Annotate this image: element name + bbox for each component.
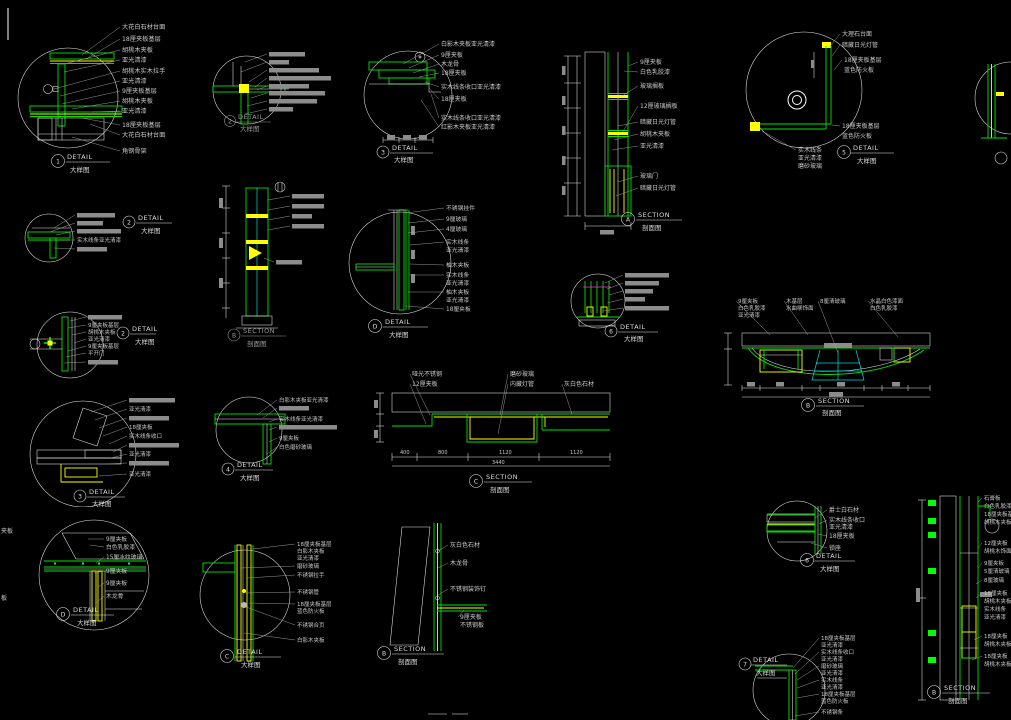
text-shape: 大样图 [756, 668, 776, 677]
leader-line [269, 438, 277, 442]
rect-shape [203, 563, 235, 572]
text-shape: DETAIL [73, 606, 99, 614]
annotation-label: 18厘夹板 [446, 305, 471, 313]
rect-shape [587, 307, 593, 316]
annotation-label: 蓝色防火板 [297, 607, 325, 615]
annotations: 9厘夹板白色乳胶漆玻璃搁板12厘玻璃搁板暗藏日光灯管胡桃木夹板亚光清漆玻璃门暗藏… [600, 58, 678, 235]
annotations [264, 194, 324, 265]
annotation-bar [829, 392, 843, 397]
leader-line [438, 589, 448, 595]
annotation-label: 不锈钢条 [821, 708, 844, 716]
annotation-label: 18厘夹板 [441, 95, 467, 103]
annotation-label: 12厘夹板 [412, 380, 438, 388]
text-shape: SECTION [818, 397, 850, 405]
leader-line [98, 583, 104, 587]
annotation-label: 白色乳胶漆 [984, 502, 1011, 510]
text-shape: B [932, 690, 936, 697]
detail-callout: 1 DETAIL 大样图 [52, 153, 111, 174]
annotation-label: 亚光清漆 [446, 246, 469, 254]
text-shape: DETAIL [237, 648, 263, 656]
text-shape: 3 [78, 494, 82, 501]
annotation-bar [292, 194, 324, 199]
leader-line [90, 545, 104, 547]
text-shape: SECTION [243, 327, 275, 335]
text-shape: 剖面图 [948, 696, 968, 705]
annotation-label: 亚光清漆 [122, 56, 147, 64]
text-shape: A [626, 217, 631, 224]
geometry [746, 32, 862, 148]
leader-line [269, 427, 277, 430]
annotation-label: 18厘夹板 [129, 423, 153, 431]
rect-shape [608, 132, 628, 135]
rect-shape [562, 96, 566, 105]
annotation-bar [269, 52, 305, 57]
drawing-corner-detail: 18厘夹板基层亚光清漆实木线条收口亚光清漆磨砂玻璃亚光清漆实木线条亚光清漆18厘… [737, 628, 927, 720]
rect-shape [894, 348, 910, 362]
rect-shape [880, 348, 892, 360]
leader-line [249, 603, 295, 604]
rect-shape [374, 400, 378, 408]
text-shape: SECTION [486, 473, 518, 481]
annotation-bar [269, 91, 325, 96]
circle-shape [349, 212, 451, 314]
circle-shape [242, 589, 246, 593]
leader-line [68, 325, 86, 328]
annotation-bar [129, 398, 175, 403]
annotation-label: 亚光清漆 [829, 523, 853, 531]
leader-line [797, 680, 819, 688]
annotation-bar [625, 289, 653, 294]
leader-line [976, 580, 982, 584]
rect-shape [940, 496, 956, 700]
annotation-label: 亚光清漆 [821, 669, 844, 677]
rect-shape [246, 240, 268, 244]
leader-line [66, 353, 86, 357]
leader-line [74, 339, 86, 343]
leader-line [269, 419, 277, 422]
annotation-label: 18厘夹板 [984, 652, 1008, 660]
annotation-label: 玻璃门 [640, 172, 658, 180]
leader-line [111, 454, 127, 458]
detail-callout: 5 DETAIL 大样图 [838, 144, 895, 165]
annotation-label: 大花白石材台面 [122, 23, 165, 31]
rect-shape [389, 78, 429, 84]
annotation-label: 木基层 [786, 297, 803, 305]
polyline-shape [392, 414, 432, 426]
annotation-label: 4厘玻璃 [446, 225, 467, 233]
annotation-label: 实木线条 [446, 271, 469, 279]
annotation-bar [77, 221, 103, 226]
annotation-label: 磨砂玻璃 [798, 162, 822, 170]
leader-line [60, 81, 120, 96]
annotation-label: 锁座 [829, 544, 841, 552]
rect-shape [767, 525, 815, 531]
annotation-label: 实木线条 [446, 238, 469, 246]
leader-line [562, 384, 572, 414]
rect-shape [585, 52, 605, 216]
leader-line [99, 418, 127, 428]
drawing-column-section: B SECTION 剖面图 [216, 178, 328, 348]
text-shape: 大样图 [394, 155, 414, 164]
text-shape: 大样图 [135, 337, 155, 346]
drawing-joint-detail: 2 DETAIL 大样图 [205, 42, 355, 134]
circle-shape [995, 152, 1007, 164]
text-shape: 剖面图 [490, 485, 510, 494]
annotation-label: 1120 [499, 450, 512, 456]
annotation-label: 18厘夹板 [441, 69, 467, 77]
drawing-panel-detail: 白影木夹板亚光清漆实木线条亚光清漆9厘夹板白色磨砂玻璃 4 DETAIL 大样图 [207, 392, 347, 484]
text-shape: 2 [121, 331, 125, 338]
annotation-label: 白色乳胶漆 [106, 543, 135, 551]
annotation-bar [403, 135, 411, 140]
annotation-label: 蓝色防火板 [842, 132, 872, 140]
circle-shape [216, 397, 282, 463]
annotation-label: 18厘夹板基层 [297, 540, 332, 548]
rect-shape [219, 198, 223, 208]
leader-line [90, 124, 120, 135]
text-shape: B [382, 651, 386, 658]
annotation-label: 9厘夹板 [106, 567, 127, 575]
annotation-label: 暗藏日光灯管 [842, 41, 878, 49]
circle-shape [30, 339, 40, 349]
annotation-label: 实木线条 [984, 605, 1007, 613]
circle-shape [251, 227, 254, 230]
leader-line [268, 206, 290, 210]
annotation-label: 亚光清漆 [798, 154, 822, 162]
leader-line [268, 226, 290, 230]
annotation-label: 9厘玻璃 [446, 215, 467, 223]
annotation-label: 9厘夹板基层 [122, 87, 157, 95]
drawing-stone-trim-detail: 爵士白石材实木线条收口亚光清漆18厘夹板锁座 6 DETAIL 大样图 [757, 498, 915, 578]
annotation-label: 白色磨砂玻璃 [279, 443, 313, 451]
drawing-wall-section-right: 石膏板白色乳胶漆18厘夹板基层胡桃木夹板12厘夹板胡桃木饰面9厘夹板5厘清玻璃8… [912, 488, 1011, 720]
text-shape: C [225, 654, 229, 661]
annotation-label: 白影木夹板 [297, 547, 325, 555]
leader-line [54, 71, 120, 89]
detail-callout: D DETAIL 大样图 [369, 318, 429, 339]
leader-line [978, 543, 982, 548]
text-shape: 6 [609, 329, 613, 336]
rect-shape [928, 657, 936, 663]
leader-line [245, 54, 267, 62]
text-shape: 大样图 [92, 499, 112, 507]
annotation-label: 实木线条亚光清漆 [77, 236, 122, 244]
rect-shape [82, 563, 84, 565]
annotation-bar [269, 84, 309, 89]
leader-line [978, 498, 982, 502]
circle-shape [419, 56, 422, 59]
rect-shape [562, 66, 566, 75]
annotation-label: 磨砂玻璃 [297, 562, 320, 570]
drawing-glass-door-detail: 18厘夹板基层白影木夹板亚光清漆磨砂玻璃不锈钢拉手不锈钢管18厘夹板基层蓝色防火… [197, 533, 353, 675]
rect-shape [38, 118, 104, 140]
rect-shape [601, 307, 607, 316]
annotation-label: 18厘夹板基层 [844, 56, 882, 64]
geometry [724, 333, 930, 397]
annotation-label: 亚光清漆 [297, 554, 320, 562]
annotation-label: 磨砂玻璃 [510, 370, 534, 378]
annotation-label: 9厘夹板 [441, 51, 463, 59]
leader-line [811, 543, 827, 548]
rect-shape [562, 186, 566, 195]
annotation-label: 胡桃木夹板 [640, 130, 670, 138]
leader-line [609, 291, 623, 295]
detail-callout: 6 DETAIL 大样图 [801, 552, 856, 573]
circle-shape [975, 62, 1011, 134]
text-shape: DETAIL [620, 323, 646, 331]
leader-line [72, 332, 86, 335]
annotation-label: 白色乳胶漆 [738, 304, 766, 312]
annotation-label: 灰白色石材 [450, 541, 480, 549]
annotation-bar [837, 382, 845, 387]
annotations: 白影木夹板亚光清漆实木线条亚光清漆9厘夹板白色磨砂玻璃 [257, 396, 337, 454]
polyline-shape [233, 62, 241, 86]
annotation-label: 不锈钢板 [460, 621, 484, 629]
detail-callout: 2 DETAIL 大样图 [123, 214, 172, 235]
text-shape: 7 [743, 662, 747, 669]
annotation-bar [776, 382, 784, 387]
annotation-label: 亚光清漆 [821, 641, 844, 649]
annotation-label: 18厘夹板基层 [297, 600, 332, 608]
geometry [25, 214, 73, 262]
text-shape: 剖面图 [642, 223, 662, 232]
text-shape: 4 [226, 467, 230, 474]
leader-line [616, 188, 638, 196]
annotation-label: 爵士白石材 [829, 506, 859, 514]
text-shape: 大样图 [240, 124, 260, 133]
annotation-bar [279, 425, 337, 430]
rect-shape [54, 563, 56, 565]
annotation-label: 白影木夹板亚光清漆 [279, 396, 329, 404]
annotation-label: 胡桃木夹板 [984, 597, 1011, 605]
annotation-label: 胡桃木夹板 [984, 660, 1011, 668]
leader-line [54, 248, 75, 249]
annotation-label: 18厘夹板 [984, 632, 1008, 640]
rect-shape [750, 122, 760, 131]
circle-shape [44, 85, 53, 94]
text-shape: 大样图 [624, 334, 644, 343]
leader-line [251, 93, 267, 98]
leader-line [410, 242, 444, 245]
text-shape: 大样图 [241, 660, 261, 669]
text-shape: B [806, 403, 810, 410]
annotation-bar [625, 281, 659, 286]
rect-shape [411, 274, 415, 283]
leader-line [830, 34, 840, 46]
leader-line [268, 216, 290, 220]
annotation-label: 红影木夹板亚光清漆 [441, 123, 495, 131]
circle-shape [793, 96, 802, 105]
leader-line [82, 27, 120, 55]
leader-line [263, 408, 277, 418]
annotation-label: 柚木夹板 [446, 288, 469, 296]
text-shape: 5 [842, 150, 846, 157]
geometry [916, 496, 999, 700]
rect-shape [996, 92, 1004, 96]
annotation-label: 不锈钢挂件 [446, 204, 475, 212]
annotation-label: 9厘夹板 [279, 434, 299, 442]
annotation-label: 9厘夹板 [738, 297, 758, 305]
section-callout: C SECTION 剖面图 [470, 473, 533, 494]
rect-shape [37, 458, 121, 464]
annotation-label: 暗藏日光灯管 [640, 118, 676, 126]
circle-shape [275, 182, 285, 192]
annotation-label: 平开门 [88, 349, 105, 357]
text-shape: D [373, 324, 378, 331]
annotation-label: 亚光清漆 [129, 470, 152, 478]
annotation-label: 不锈钢装饰钉 [450, 585, 486, 593]
annotation-label: 实木线条收口 [829, 516, 865, 524]
text-shape: 大样图 [70, 165, 90, 174]
detail-callout: 3 DETAIL 大样图 [74, 488, 125, 507]
leader-line [622, 86, 638, 96]
leader-line [498, 384, 508, 434]
text-shape: 大样图 [141, 226, 161, 235]
path-shape [752, 348, 920, 371]
annotation-label: 9厘夹板基层 [88, 321, 119, 329]
rect-shape [219, 238, 223, 248]
rect-shape [68, 563, 70, 565]
annotation-label: 亚光清漆 [821, 655, 844, 663]
geometry [975, 62, 1011, 164]
rect-shape [374, 430, 378, 438]
leader-line [50, 223, 75, 232]
annotation-bar [88, 315, 122, 320]
rect-shape [562, 156, 566, 165]
text-shape: SECTION [394, 645, 426, 653]
rect-shape [928, 518, 936, 524]
annotation-label: 亚光清漆 [122, 107, 147, 115]
drawing-door-detail: 9厘夹板基层胡桃木夹板亚光清漆9厘夹板基层平开门 2 DETAIL 大样图 [22, 303, 158, 403]
leader-line [241, 62, 267, 72]
rect-shape [28, 232, 70, 238]
rect-shape [38, 118, 52, 140]
annotation-label: 实木线条收口亚光清漆 [441, 114, 501, 122]
text-shape: 剖面图 [822, 408, 842, 417]
leader-line [68, 346, 86, 351]
annotation-bar [77, 213, 115, 218]
rect-shape [811, 60, 814, 68]
cad-model-space[interactable]: 夹板 板 大花白石材台面18厘夹板基层胡桃木夹板亚光清漆胡桃木实木拉手亚光清漆9… [0, 0, 1011, 720]
annotation-label: 木龙骨 [106, 592, 124, 600]
annotation-bar [129, 443, 179, 448]
annotation-label: 9厘夹板 [984, 559, 1004, 567]
leader-line [113, 445, 127, 452]
drawing-frame-detail: 亚光清漆18厘夹板实木线条收口亚光清漆亚光清漆 3 DETAIL 大样图 [25, 392, 185, 507]
text-shape: 剖面图 [247, 339, 267, 348]
annotations: 爵士白石材实木线条收口亚光清漆18厘夹板锁座 [811, 506, 865, 552]
annotation-label: 12厘夹板 [984, 539, 1008, 547]
geometry [349, 210, 451, 314]
annotation-label: 胡桃木夹板 [984, 518, 1011, 526]
leader-line [406, 208, 444, 213]
clipped-label: 板 [1, 594, 7, 602]
leader-line [622, 106, 638, 133]
leader-line [978, 563, 982, 568]
geometry [215, 397, 285, 464]
annotation-label: 3440 [492, 460, 505, 466]
leader-line [408, 219, 444, 223]
annotation-label: 亚光清漆 [446, 279, 469, 287]
drawing-trim-detail: 实木线条亚光清漆 2 DETAIL 大样图 [22, 208, 174, 268]
annotation-label: 胡桃木饰面 [984, 547, 1011, 555]
rect-shape [246, 266, 268, 270]
polyline-shape [467, 414, 537, 442]
polygon-shape [249, 246, 262, 260]
rect-shape [98, 571, 102, 621]
annotation-label: 亚光清漆 [122, 77, 147, 85]
rect-shape [239, 84, 249, 93]
text-shape: 大样图 [857, 156, 877, 165]
circle-shape [788, 91, 806, 109]
annotations: 9厘夹板白色乳胶漆亚光清漆木基层水曲柳饰面8厘清玻璃水晶白色漆面白色乳胶漆 [736, 297, 904, 397]
section-callout: B SECTION 剖面图 [928, 684, 991, 705]
text-shape: 剖面图 [398, 657, 418, 666]
leader-line [253, 544, 295, 549]
rect-shape [98, 563, 100, 565]
annotation-bar [292, 204, 324, 209]
annotation-bar [269, 99, 317, 104]
annotation-label: 白色乳胶漆 [870, 304, 898, 312]
annotations [241, 52, 331, 114]
annotation-label: 实木线条收口 [129, 432, 162, 440]
annotation-label: 9厘夹板基层 [88, 342, 119, 350]
annotation-label: 实木线条收口亚光清漆 [441, 83, 501, 91]
annotation-bar [269, 76, 331, 81]
annotation-label: 实木线条 [798, 146, 822, 154]
clipped-label: 夹板 [1, 527, 13, 535]
annotation-label: 不锈钢管 [297, 588, 320, 596]
leader-line [425, 82, 439, 87]
rect-shape [822, 42, 831, 48]
annotation-label: 18厘夹板基层 [984, 510, 1011, 518]
annotation-label: 18厘夹板基层 [122, 121, 161, 129]
annotation-label: 800 [438, 450, 448, 456]
circle-shape [200, 550, 290, 640]
text-shape: B [232, 333, 236, 340]
leader-line [409, 55, 439, 68]
annotation-bar [625, 306, 669, 311]
leader-line [419, 73, 439, 77]
rect-shape [48, 341, 53, 346]
text-shape: DETAIL [132, 325, 158, 333]
annotation-bar [269, 60, 289, 65]
annotation-bar [279, 406, 309, 411]
leader-line [605, 275, 623, 283]
annotation-bar [419, 135, 427, 140]
leader-line [96, 596, 104, 603]
annotation-label: 400 [400, 450, 410, 456]
drawing-mosaic-detail: 6 DETAIL 大样图 [563, 263, 713, 343]
leader-line [624, 71, 638, 72]
annotation-bar [292, 214, 312, 219]
annotation-label: 白影木夹板亚光清漆 [441, 40, 495, 48]
text-shape: 6 [805, 558, 809, 565]
annotation-label: 磨砂玻璃 [821, 662, 844, 670]
leader-line [244, 633, 295, 640]
drawing-ceiling-section: 哑光不锈钢12厘夹板磨砂玻璃内藏灯管灰白色石材40080011201120344… [372, 362, 620, 495]
annotations: 灰白色石材木龙骨不锈钢装饰钉9厘夹板不锈钢板 [438, 541, 486, 629]
text-shape: 2 [127, 220, 131, 227]
annotation-label: 9厘夹板 [460, 613, 482, 621]
circle-shape [746, 32, 862, 148]
leader-line [438, 563, 448, 568]
rect-shape [242, 316, 272, 325]
drawing-glass-partition-detail: 9厘夹板白色乳胶漆15厘冰纹玻璃9厘夹板9厘夹板木龙骨 D DETAIL 大样图 [32, 513, 190, 645]
leader-line [429, 88, 439, 99]
polyline-shape [470, 417, 534, 439]
annotations: 白影木夹板亚光清漆9厘夹板木龙骨18厘夹板实木线条收口亚光清漆18厘夹板实木线条… [387, 40, 501, 140]
